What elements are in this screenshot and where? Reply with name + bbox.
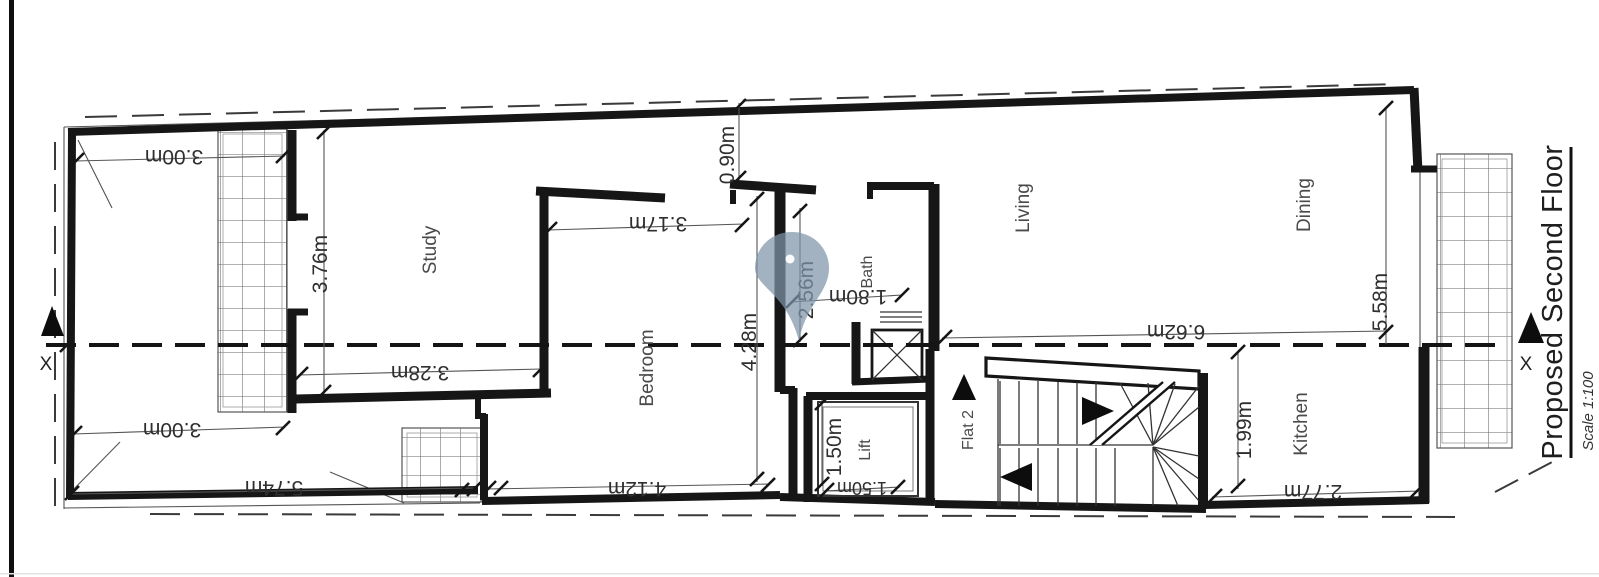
dimension-living-depth: 5.58m: [1369, 273, 1392, 331]
room-label-flat: Flat 2: [960, 410, 977, 450]
dimension-study-width: 3.28m: [391, 361, 449, 384]
stair-up-arrow-icon: [1082, 397, 1114, 425]
dimension-bath-width: 1.80m: [829, 285, 887, 308]
dimension-study-passage-width: 3.17m: [629, 212, 687, 235]
section-arrow-left-icon: [41, 306, 64, 336]
room-label-study: Study: [420, 225, 441, 274]
room-label-bedroom: Bedroom: [637, 329, 658, 406]
sheet-border-line: [9, 0, 14, 577]
staircase: [986, 358, 1199, 506]
room-label-kitchen: Kitchen: [1291, 392, 1312, 455]
dimension-bedroom-width: 4.12m: [608, 477, 666, 500]
floor-plan-page: X X: [0, 0, 1599, 577]
dimension-kitchen-width: 2.77m: [1284, 480, 1342, 503]
hatched-shaft-left: [218, 129, 287, 412]
hatched-balcony-right: [1437, 154, 1512, 448]
dimension-kitchen-depth: 1.99m: [1233, 401, 1256, 459]
room-label-bath: Bath: [859, 256, 876, 289]
dimension-terrace-length: 5.74m: [245, 476, 303, 499]
location-pin-icon: [755, 232, 829, 341]
section-label-right: X: [1520, 354, 1533, 375]
page-bottom-divider: [0, 573, 1599, 575]
drawing-scale-note: Scale 1:100: [1580, 371, 1597, 451]
dimension-bedroom-depth: 4.28m: [738, 313, 761, 371]
dimension-living-length: 6.62m: [1147, 320, 1205, 343]
dimension-terrace-width-top: 3.00m: [145, 145, 203, 168]
dimension-terrace-width-mid: 3.00m: [143, 418, 201, 441]
dimension-study-depth: 3.76m: [309, 235, 332, 293]
room-labels: Study Bedroom Bath Living Dining Kitchen…: [420, 178, 1315, 461]
room-label-living: Living: [1013, 183, 1034, 233]
floor-plan-canvas: X X: [0, 0, 1599, 577]
dimension-lift-width: 1.50m: [837, 478, 887, 498]
drawing-title: Proposed Second Floor: [1537, 144, 1569, 459]
room-label-dining: Dining: [1294, 178, 1315, 232]
section-label-left: X: [40, 354, 53, 375]
flat-entry-arrow-icon: [952, 374, 976, 400]
dimension-rear-yard-depth: 0.90m: [716, 126, 739, 184]
dimension-lift-depth: 1.50m: [823, 418, 846, 476]
stair-down-arrow-icon: [1000, 463, 1032, 491]
room-label-lift: Lift: [857, 439, 874, 461]
title-block: Proposed Second Floor Scale 1:100: [1537, 144, 1597, 459]
